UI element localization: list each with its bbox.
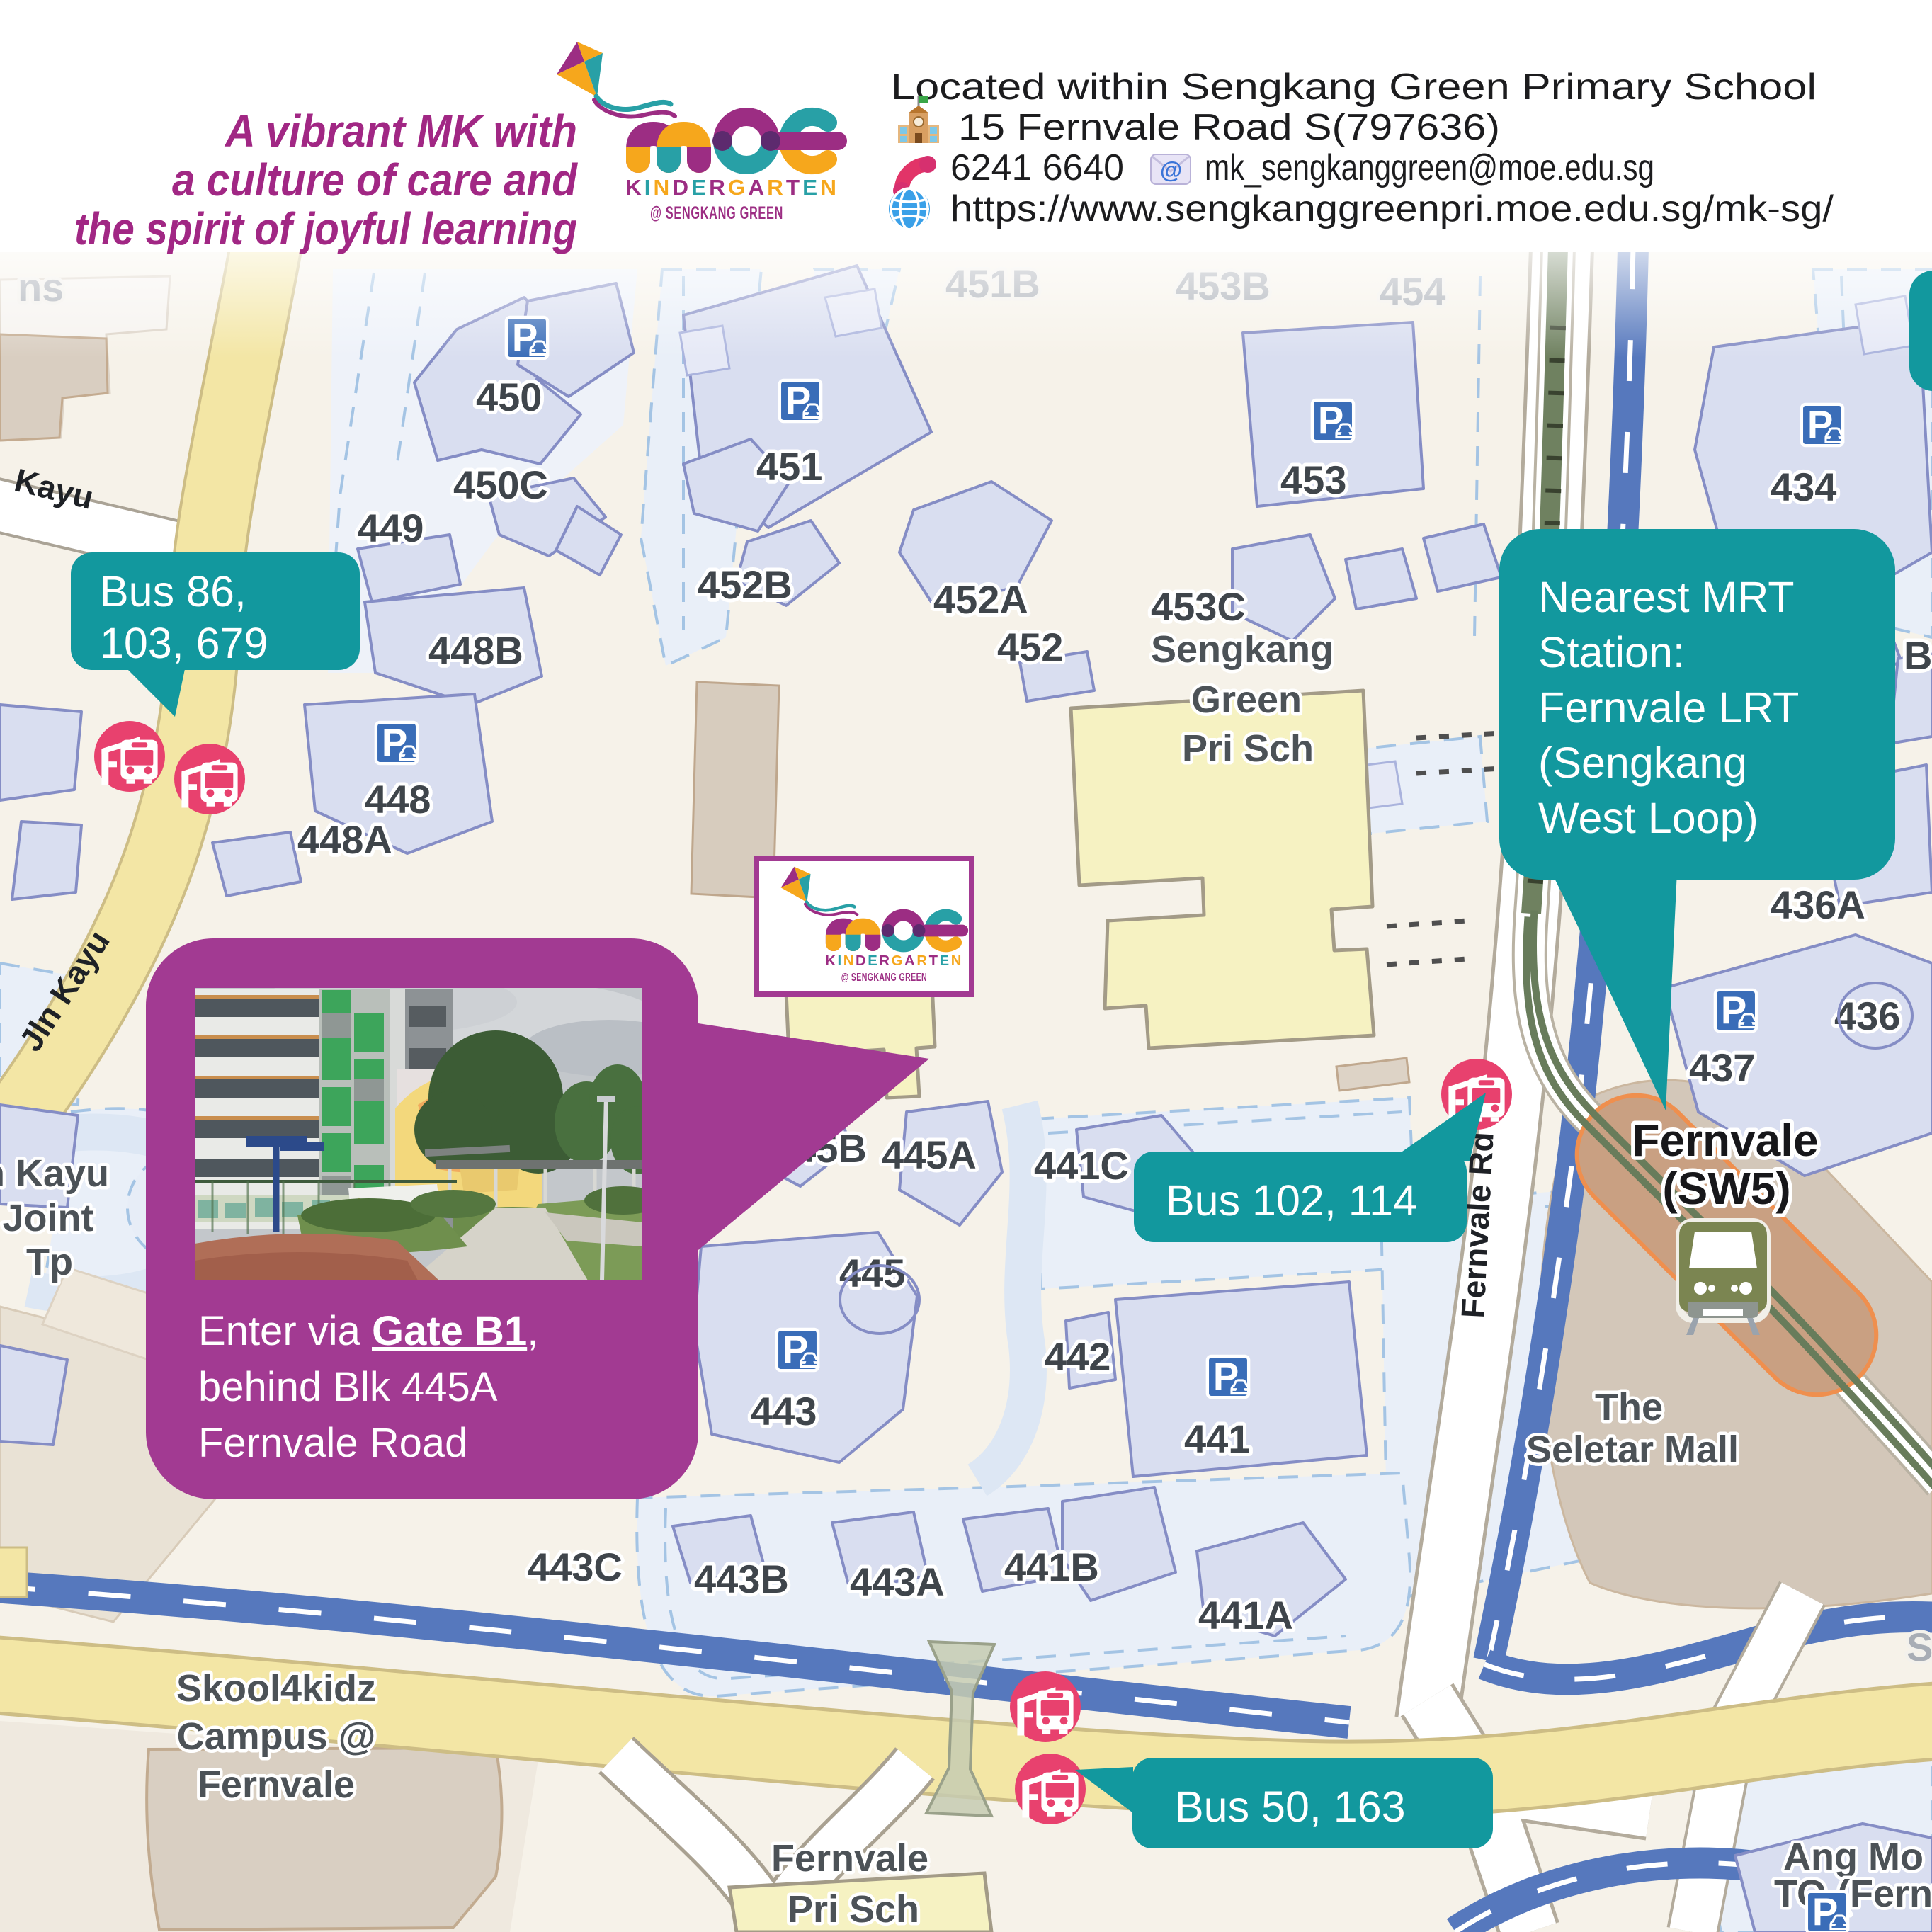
- svg-text:15 Fernvale Road S(797636): 15 Fernvale Road S(797636): [958, 107, 1500, 148]
- svg-text:S: S: [1907, 1625, 1932, 1669]
- svg-text:A vibrant MK with: A vibrant MK with: [224, 106, 577, 157]
- svg-text:441: 441: [1184, 1416, 1250, 1461]
- svg-text:445: 445: [839, 1251, 905, 1295]
- svg-text:Enter via Gate B1,: Enter via Gate B1,: [198, 1308, 538, 1354]
- svg-text:Joint: Joint: [3, 1197, 94, 1239]
- svg-text:434: 434: [1771, 465, 1836, 509]
- svg-text:n Kayu: n Kayu: [0, 1152, 109, 1195]
- svg-text:Green: Green: [1191, 678, 1302, 721]
- svg-text:B: B: [1904, 633, 1932, 678]
- svg-text:449: 449: [358, 506, 424, 550]
- svg-text:443: 443: [751, 1389, 817, 1433]
- svg-text:442: 442: [1045, 1334, 1110, 1379]
- svg-text:Bus 102, 114: Bus 102, 114: [1166, 1176, 1417, 1224]
- svg-text:441B: 441B: [1004, 1545, 1099, 1589]
- svg-text:450: 450: [476, 375, 542, 419]
- svg-text:103, 679: 103, 679: [100, 619, 268, 667]
- svg-text:Fernvale Road: Fernvale Road: [198, 1420, 467, 1466]
- svg-text:Ang Mo K: Ang Mo K: [1783, 1836, 1932, 1878]
- svg-text:453C: 453C: [1151, 584, 1246, 629]
- svg-text:437: 437: [1689, 1045, 1755, 1090]
- svg-text:Sengkang: Sengkang: [1151, 628, 1334, 671]
- svg-text:445A: 445A: [882, 1132, 977, 1177]
- svg-text:West Loop): West Loop): [1538, 794, 1758, 842]
- svg-text:452B: 452B: [698, 562, 792, 607]
- svg-text:Bus 50, 163: Bus 50, 163: [1175, 1783, 1406, 1831]
- svg-text:Skool4kidz: Skool4kidz: [176, 1667, 376, 1710]
- svg-text:448: 448: [365, 777, 431, 822]
- svg-text:Station:: Station:: [1538, 628, 1685, 676]
- svg-text:mk_sengkanggreen@moe.edu.sg: mk_sengkanggreen@moe.edu.sg: [1205, 147, 1654, 188]
- svg-text:450C: 450C: [453, 462, 548, 507]
- svg-text:Nearest MRT: Nearest MRT: [1538, 573, 1795, 621]
- svg-text:a culture of care and: a culture of care and: [172, 154, 579, 205]
- svg-text:453: 453: [1280, 458, 1346, 502]
- svg-text:The: The: [1595, 1386, 1663, 1428]
- svg-text:TO (Fernv: TO (Fernv: [1774, 1873, 1932, 1915]
- svg-text:443A: 443A: [850, 1559, 945, 1604]
- svg-text:441C: 441C: [1034, 1143, 1129, 1188]
- svg-text:6241 6640: 6241 6640: [950, 147, 1124, 188]
- svg-text:Bus 86,: Bus 86,: [100, 567, 246, 615]
- svg-text:@: @: [1160, 157, 1182, 183]
- svg-text:Located within Sengkang Green: Located within Sengkang Green Primary Sc…: [891, 67, 1817, 108]
- svg-text:Fernvale: Fernvale: [771, 1837, 928, 1880]
- svg-text:452A: 452A: [933, 577, 1028, 622]
- svg-text:448B: 448B: [428, 628, 523, 673]
- svg-text:behind Blk 445A: behind Blk 445A: [198, 1364, 498, 1410]
- svg-text:443C: 443C: [528, 1545, 623, 1589]
- svg-text:441A: 441A: [1198, 1593, 1293, 1637]
- svg-text:Fernvale LRT: Fernvale LRT: [1538, 683, 1799, 732]
- svg-text:(Sengkang: (Sengkang: [1538, 739, 1747, 787]
- svg-text:436A: 436A: [1771, 882, 1865, 927]
- svg-text:451: 451: [756, 444, 822, 489]
- svg-text:Pri Sch: Pri Sch: [1182, 727, 1314, 770]
- svg-text:443B: 443B: [694, 1557, 789, 1601]
- svg-text:448A: 448A: [297, 817, 392, 862]
- svg-text:Tp: Tp: [26, 1241, 73, 1283]
- svg-text:452: 452: [997, 625, 1063, 669]
- svg-text:Fernvale: Fernvale: [1632, 1115, 1818, 1166]
- svg-text:Campus @: Campus @: [177, 1715, 376, 1758]
- svg-text:(SW5): (SW5): [1662, 1163, 1790, 1214]
- svg-text:Pri Sch: Pri Sch: [788, 1888, 919, 1931]
- svg-text:https://www.sengkanggreenpri.m: https://www.sengkanggreenpri.moe.edu.sg/…: [950, 188, 1834, 229]
- svg-text:the spirit of joyful learning: the spirit of joyful learning: [74, 203, 577, 254]
- svg-text:Seletar Mall: Seletar Mall: [1526, 1428, 1739, 1471]
- svg-text:Fernvale: Fernvale: [198, 1763, 355, 1806]
